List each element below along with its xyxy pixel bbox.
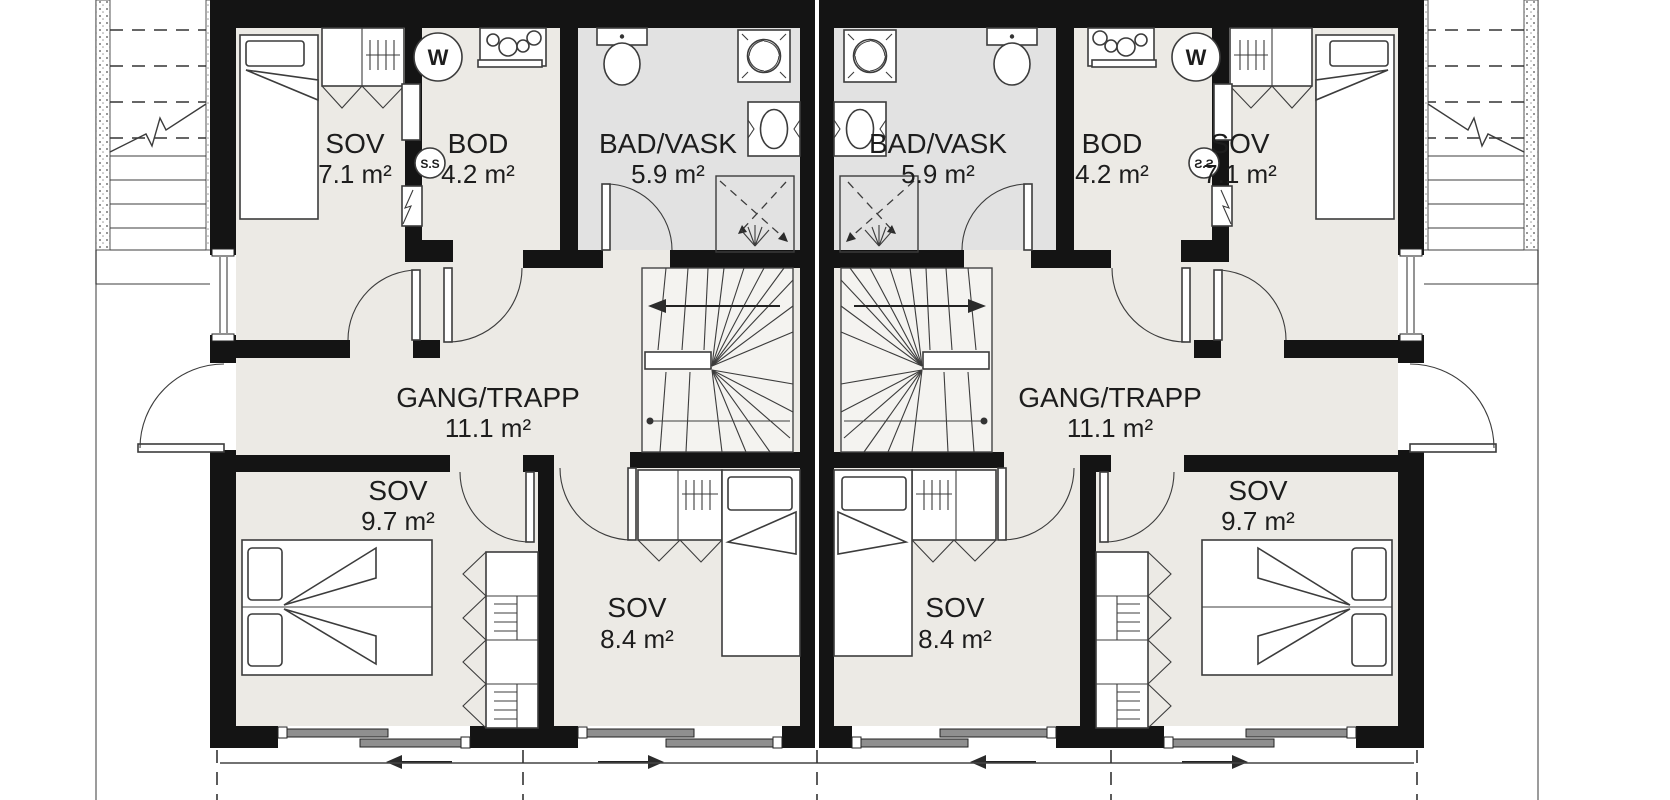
room-area-right-gang: 11.1 m² (1067, 413, 1154, 443)
room-area-left-bod: 4.2 m² (441, 159, 515, 189)
room-area-left-sov-bottom: 9.7 m² (361, 506, 435, 536)
room-label-right-bod: BOD (1082, 128, 1143, 159)
room-area-right-bod: 4.2 m² (1075, 159, 1149, 189)
room-area-left-gang: 11.1 m² (445, 413, 532, 443)
room-area-right-sov-bottom: 9.7 m² (1221, 506, 1295, 536)
room-area-right-sov-top: 7.1 m² (1203, 159, 1277, 189)
floor-plan: W S.S (0, 0, 1670, 800)
room-label-left-gang: GANG/TRAPP (396, 382, 580, 413)
room-label-right-bad: BAD/VASK (869, 128, 1007, 159)
room-label-left-bad: BAD/VASK (599, 128, 737, 159)
room-area-left-sov-mid: 8.4 m² (600, 624, 674, 654)
room-area-right-bad: 5.9 m² (901, 159, 975, 189)
room-label-right-gang: GANG/TRAPP (1018, 382, 1202, 413)
room-area-left-sov-top: 7.1 m² (318, 159, 392, 189)
room-label-left-sov-mid: SOV (607, 592, 666, 623)
room-label-left-sov-bottom: SOV (368, 475, 427, 506)
room-label-right-sov-mid: SOV (925, 592, 984, 623)
room-label-left-bod: BOD (448, 128, 509, 159)
room-label-right-sov-bottom: SOV (1228, 475, 1287, 506)
room-area-left-bad: 5.9 m² (631, 159, 705, 189)
room-label-left-sov-top: SOV (325, 128, 384, 159)
room-area-right-sov-mid: 8.4 m² (918, 624, 992, 654)
room-label-right-sov-top: SOV (1210, 128, 1269, 159)
